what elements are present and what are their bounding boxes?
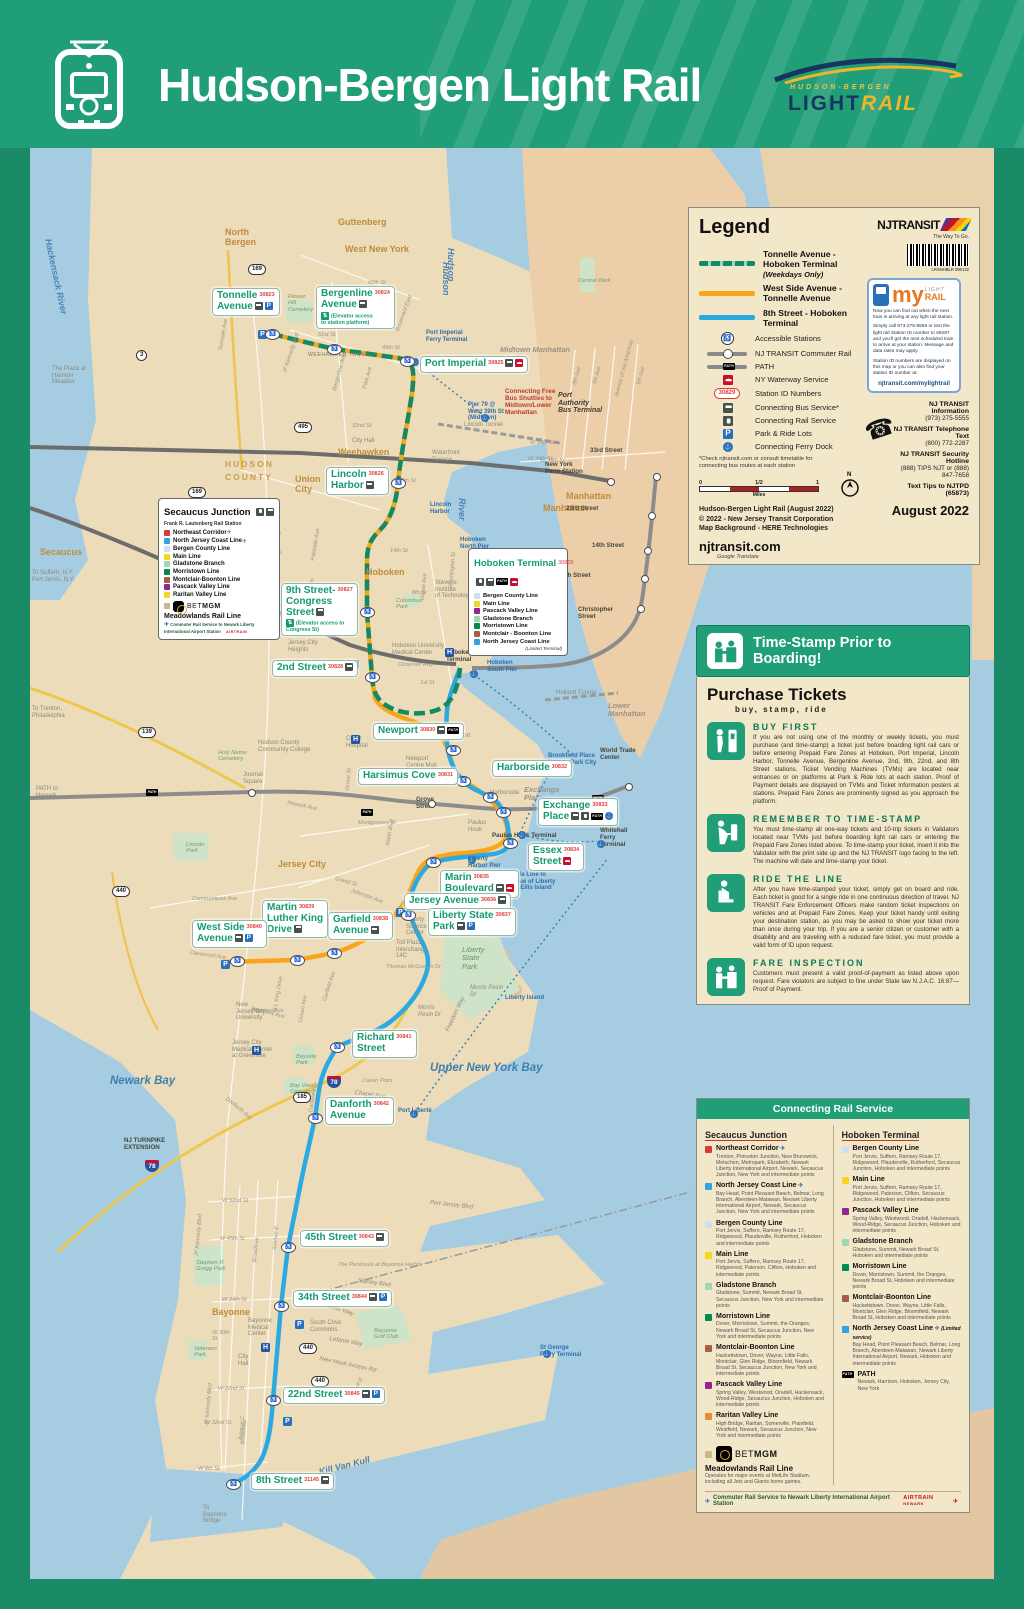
commuter-rail-station-dot [648,512,656,520]
map-label: Bayonne Medical Center [248,1318,272,1338]
station-name: 34th Street [298,1292,350,1303]
hoboken-box-title: Hoboken Terminal [474,558,556,569]
station-label: Bergenline30824Avenue⇅(Elevator access t… [316,286,395,329]
map-label: Guttenberg [338,218,387,228]
light-rail-train-icon [50,38,128,130]
station-marker: ♿ [308,1113,323,1124]
map-label: City Hall [352,438,374,445]
line-color-swatch [842,1208,849,1215]
station-label: 2nd Street30828 [272,660,358,677]
map-label: Jersey City Heights [288,640,318,653]
barcode [907,244,969,266]
map-label: 51st St [318,332,335,338]
rail-line-entry: Bergen County LinePort Jervis, Suffern, … [705,1220,825,1247]
station-name: Port Imperial [425,358,486,369]
station-id: 30844 [352,1294,367,1300]
nyww-icon [515,359,523,367]
station-id: 30835 [474,874,489,880]
station-label: Port Imperial30825 [420,356,528,373]
park-icon: P [379,1293,387,1301]
line-color-swatch [705,1345,712,1352]
airtrain-plane-icon: ✈ [953,1498,958,1505]
commuter-rail-station-dot [625,783,633,791]
path-icon: PATH [591,813,603,820]
station-name: Garfield [333,914,371,925]
station-marker: ♿ [360,607,375,618]
rail-line-entry: Pascack Valley LineSpring Valley, Westwo… [842,1207,962,1234]
column-title: Hoboken Terminal [842,1130,920,1141]
map-label: Hoboken [366,568,405,578]
station-name: Congress [286,596,332,607]
legend-symbol-row: ♿Accessible Stations [699,332,861,345]
park-icon: P [723,429,733,439]
elev-icon: ⇅ [321,312,329,320]
fare-inspection-icon [707,633,743,669]
station-id: 30843 [359,1234,374,1240]
rail-line-entry: Gladstone BranchGladstone, Summit, Newar… [705,1282,825,1309]
map-label: Caven Point [362,1078,392,1084]
route-badge: 139 [138,727,156,738]
scale-bar: 01/21MilesN [699,476,861,498]
hblr-logo-top: HUDSON-BERGEN [790,84,892,91]
park-ride-icon: P [221,960,230,969]
map-label: Communipaw Ave [192,896,237,902]
bus-icon [294,925,302,933]
station-name: Harbor [331,480,364,491]
line-color-swatch [705,1183,712,1190]
rail-line-entry: Northeast Corridor ✈Trenton, Princeton J… [705,1145,825,1178]
map-label: 33rd Street [590,448,622,455]
secaucus-junction-box: Secaucus Junction Frank R. Lautenberg Ra… [158,498,280,640]
station-label: Richard30841Street [352,1030,417,1058]
map-label: Lincoln Tunnel [464,422,503,429]
map-label: Journal Square [243,772,263,785]
airtrain-logo: AIRTRAIN NEWARK [903,1495,953,1507]
limited-service-note: (Limited Terminal) [474,646,562,651]
bus-icon [496,884,504,892]
station-id: 30825 [488,360,503,366]
station-label: Danforth30842Avenue [325,1097,394,1125]
map-label: To Bayonne Bridge [203,1505,227,1525]
ferry-dock-icon: ⚓ [410,1110,418,1118]
ferry-icon: ⚓ [605,812,613,820]
station-name: Avenue [321,299,357,310]
rail-line-entry: Morristown LineDover, Morristown, Summit… [705,1313,825,1340]
station-marker: ♿ [274,1301,289,1312]
bus-icon [437,726,445,734]
hospital-icon: H [261,1343,270,1352]
station-marker: ♿ [281,1242,296,1253]
map-label: Bayview Ave [252,1008,284,1014]
map-label: Connecting Free Bus Shuttles to Midtown/… [505,388,555,416]
station-label: 34th Street30844P [293,1290,392,1307]
station-name: Jersey Avenue [409,895,479,906]
map-label: Hoboken University Medical Center [392,643,444,656]
station-name: Place [543,811,569,822]
nyww-icon [510,578,518,586]
station-marker: ♿ [290,955,305,966]
line-color-swatch [705,1413,712,1420]
map-label: Secaucus [40,548,82,558]
hblr-logo-main: LIGHTRAIL [788,92,918,116]
map-label: To Suffern, N.Y. Port Jervis, N.Y. [32,570,75,583]
ticket-instruction-section: FARE INSPECTIONCustomers must present a … [707,958,959,996]
myrail-text-2: Simply call 973-275-5555 or text the lig… [873,324,955,355]
elev-icon: ⇅ [286,619,294,627]
ferry-dock-icon: ⚓ [470,670,478,678]
legend-symbol-row: ⚓Connecting Ferry Dock [699,442,861,451]
hospital-icon: H [445,648,454,657]
map-label: Holy Name Cemetery [218,750,247,763]
station-marker: ♿ [483,792,498,803]
station-label: Tonnelle30823AvenueP [212,288,280,316]
station-id: 30840 [247,924,262,930]
bus-icon [362,1390,370,1398]
nyww-icon [506,884,514,892]
betmgm-logo: BETMGM [705,1446,825,1462]
connecting-rail-panel: Connecting Rail Service Secaucus Junctio… [696,1098,970,1513]
rail-line-entry: Raritan Valley Line [164,592,274,598]
line-color-swatch [705,1221,712,1228]
rider-icon [707,874,745,912]
bus-icon [376,1233,384,1241]
station-marker: ♿ [391,478,406,489]
route-swatch-icon [699,261,755,266]
map-label: Bayonne Golf Club [374,1328,398,1341]
contact-entry: Text Tips to NJTPD (65873) [891,483,969,497]
station-id: 30833 [592,802,607,808]
route-badge: 440 [311,1376,329,1387]
myrail-link: njtransit.com/mylightrail [873,380,955,387]
line-color-swatch [842,1295,849,1302]
rail-line-entry: Main Line [164,554,274,560]
accessible-icon: ♿ [721,332,734,345]
map-label: Morris Pesin Dr [470,985,503,998]
contact-entry: NJ TRANSIT Telephone Text(800) 772-2287 [891,426,969,447]
rail-line-entry: Main LinePort Jervis, Suffern, Ramsey Ro… [842,1176,962,1203]
route-badge: 495 [294,422,312,433]
compass-icon: N [839,476,861,498]
secaucus-column: Secaucus JunctionNortheast Corridor ✈Tre… [705,1125,825,1485]
station-id: 30836 [481,897,496,903]
commuter-rail-station-dot [607,478,615,486]
rail-line-entry: Gladstone BranchGladstone, Summit, Newar… [842,1238,962,1259]
rail-icon [581,812,589,820]
map-label: Midtown Manhattan [500,346,570,354]
google-translate: Google Translate [717,554,861,560]
park-icon: P [372,1390,380,1398]
map-label: 32nd St [352,423,371,429]
ferry-dock-icon: ⚓ [518,831,526,839]
rail-line-entry: PATHPATHNewark, Harrison, Hoboken, Jerse… [842,1371,962,1392]
hospital-icon: H [351,735,360,744]
rail-line-entry: Raritan Valley LineHigh Bridge, Raritan,… [705,1412,825,1439]
commuter-rail-station-dot [428,800,436,808]
station-label: Liberty State30837ParkP [428,908,516,936]
line-color-swatch [842,1326,849,1333]
tvm-icon [707,722,745,760]
station-name: Martin [267,902,297,913]
map-label: Lincoln Harbor [430,502,451,515]
station-name: 2nd Street [277,662,326,673]
station-id: 30834 [564,847,579,853]
map-label: West New York [345,245,409,255]
bus-icon [235,934,243,942]
route-badge: 440 [112,886,130,897]
station-name: Newport [378,725,418,736]
legend-title: Legend [699,216,770,239]
ferry-dock-icon: ⚓ [543,1350,551,1358]
rail-line-entry: Main Line [474,601,562,607]
map-label: The Peninsula at Bayonne Harbor [338,1262,422,1268]
ferry-dock-icon: ⚓ [468,856,476,864]
map-label: 14th Street [592,543,624,550]
hoboken-column: Hoboken TerminalBergen County LinePort J… [833,1125,962,1485]
rail-line-entry: Northeast Corridor ✈ [164,529,274,536]
bus-icon [571,812,579,820]
map-label: To Trenton, Philadelphia [32,706,65,719]
map-label: Hudson [445,248,455,282]
commuter-rail-station-dot [653,473,661,481]
route-badge: 169 [248,264,266,275]
nyww-icon [723,375,733,385]
station-label: 8th Street31145 [251,1473,334,1490]
map-label: Bayonne [212,1308,250,1318]
station-id: 30842 [374,1101,389,1107]
rail-line-entry: Morristown Line [164,569,274,575]
park-ride-icon: P [283,1417,292,1426]
station-id: 30828 [328,664,343,670]
map-label: Manhattan [566,492,611,502]
connecting-rail-title: Connecting Rail Service [697,1099,969,1119]
bus-icon [359,300,367,308]
map-label: Hudson County Community College [258,740,310,753]
hospital-icon: H [252,1046,261,1055]
njtransit-swoosh-icon [940,218,972,231]
rail-icon [256,508,264,516]
ferry-icon: ⚓ [723,442,733,452]
header-banner: Hudson-Bergen Light Rail HUDSON-BERGEN L… [0,0,1024,148]
section-heading: BUY FIRST [753,722,959,732]
station-name: Liberty State [433,910,494,921]
route-swatch-icon [699,315,755,320]
airplane-icon: ✈ [705,1498,710,1505]
map-label: HUDSON COUNTY [225,458,274,484]
bus-icon [369,1293,377,1301]
path-icon: PATH [496,578,508,585]
station-id: 30823 [259,292,274,298]
map-label: Toll Plaza Interchange 14C [396,940,428,960]
station-id: 30827 [337,587,352,593]
station-id: 30831 [438,772,453,778]
map-label: Port Authority Bus Terminal [558,392,602,415]
credits: Hudson-Bergen Light Rail (August 2022)© … [699,505,861,532]
path-logo-icon: PATH [146,789,158,796]
map-label: Morris Pesin Dr [418,1005,441,1018]
section-heading: REMEMBER TO TIME-STAMP [753,814,959,824]
station-name: Tonnelle [217,290,257,301]
rail-icon [476,578,484,586]
map-label: Union City [295,475,321,495]
station-name: Danforth [330,1099,372,1110]
purchase-tickets-title: Purchase Tickets [707,685,847,704]
station-marker: ♿ [226,1479,241,1490]
commuter-rail-station-dot [637,605,645,613]
station-name: Avenue [217,301,253,312]
bus-icon [255,302,263,310]
commuter-rail-station-dot [641,575,649,583]
station-name: Street [286,607,314,618]
rail-icon [723,416,733,426]
contact-entry: NJ TRANSIT Information(973) 275-5555 [891,401,969,422]
station-label: 45th Street30843 [300,1230,389,1247]
map-label: Liberty Island [505,995,544,1002]
map-label: Jersey City [278,860,326,870]
rail-line-entry: Pascack Valley Line [474,608,562,614]
line-color-swatch [705,1283,712,1290]
station-name: Marin [445,872,472,883]
commuter-rail-station-dot [248,789,256,797]
station-name: Richard [357,1032,394,1043]
map-label: Weehawken [338,448,389,458]
line-color-swatch [842,1146,849,1153]
station-name: Harborside [497,762,550,773]
station-name: Street [357,1043,385,1054]
hoboken-station-id: 30829 [558,560,573,566]
park-icon: P [265,302,273,310]
map-label: 8th St [412,590,427,596]
commuter-rail-icon [707,352,747,356]
rail-line-entry: Montclair-Boonton Line [164,577,274,583]
section-heading: FARE INSPECTION [753,958,959,968]
rail-line-entry: North Jersey Coast Line ✈Bay Head, Point… [705,1182,825,1215]
rail-line-entry: Bergen County Line [474,593,562,599]
map-label: W 52nd St [222,1198,248,1204]
legend-route-row: Tonnelle Avenue - Hoboken Terminal (Week… [699,249,861,279]
commuter-rail-station-dot [644,547,652,555]
line-color-swatch [705,1314,712,1321]
inspect-icon [707,958,745,996]
purchase-tickets-tagline: buy, stamp, ride [735,705,959,714]
ticket-instruction-section: RIDE THE LINEAfter you have time-stamped… [707,874,959,950]
map-label: 23rd Street [566,506,598,513]
station-marker: ♿ [496,807,511,818]
rail-line-entry: Montclair-Boonton LineHackettstown, Dove… [842,1294,962,1321]
map-label: W 34th St [222,1297,247,1303]
line-color-swatch [705,1146,712,1153]
station-name: Avenue [197,933,233,944]
map-label: PATH to Newark [36,786,58,799]
station-label: Garfield30838Avenue [328,912,393,940]
map-label: Thomas McGovern Dr [386,964,441,970]
legend-symbol-row: 30829Station ID Numbers [699,388,861,399]
rail-line-entry: North Jersey Coast Line [474,639,562,645]
station-marker: ♿ [365,672,380,683]
path-icon: PATH [842,1371,854,1378]
hoboken-terminal-box: Hoboken Terminal30829 PATH Bergen County… [468,548,568,656]
station-id: 30830 [420,727,435,733]
path-icon: PATH [447,727,459,734]
map-label: Lower Manhattan [608,702,646,719]
route-badge: 169 [188,487,206,498]
station-label: Harborside30832 [492,760,572,777]
station-marker: ♿ [327,948,342,959]
map-label: Columbus Park [396,598,422,611]
map-label: Upper New York Bay [430,1062,542,1075]
legend-symbol-row: Connecting Rail Service [699,416,861,425]
path-logo-icon: PATH [361,809,373,816]
station-name: Park [433,921,455,932]
station-marker: ♿ [456,776,471,787]
station-label: Newport30830PATH [373,723,464,740]
map-label: 14th St [390,548,408,554]
station-name: 9th Street- [286,585,335,596]
map-label: River [456,498,466,521]
map-date: August 2022 [867,503,969,518]
legend-symbol-row: NJ TRANSIT Commuter Rail [699,349,861,358]
station-name: Luther King [267,913,323,924]
map-label: W 8th St [198,1466,219,1472]
website: njtransit.com [699,539,861,554]
map-label: Lincoln Park [186,842,204,855]
section-heading: RIDE THE LINE [753,874,959,884]
legend-right-column: LRSNHBLR 080122 my LIGHTRAIL Now you can… [861,244,969,560]
secaucus-box-subtitle: Frank R. Lautenberg Rail Station [164,521,274,527]
map-label: Holland Tunnel [556,690,596,697]
station-label: Lincoln30826Harbor [326,467,389,495]
station-id: 30837 [496,912,511,918]
map-label: W 34th St [540,458,565,464]
column-title: Secaucus Junction [705,1130,787,1141]
station-marker: ♿ [265,329,280,340]
station-name: Lincoln [331,469,367,480]
map-label: Christopher Street [578,607,613,621]
bus-icon [371,926,379,934]
map-label: City Hall [238,1354,248,1367]
bus-icon [457,922,465,930]
bus-icon [723,403,733,413]
station-id: 30839 [299,904,314,910]
map-label: Hoboken South Pier [487,660,517,673]
secaucus-box-title: Secaucus Junction [164,507,251,518]
station-label: Harsimus Cove30831 [358,768,458,785]
rail-line-entry: Gladstone Branch [164,561,274,567]
rail-line-entry: Bergen County Line [164,546,274,552]
station-name: Bergenline [321,288,373,299]
map-label: The Plaza at Harmon Meadow [52,366,86,386]
station-marker: ♿ [503,838,518,849]
legend-symbol-row: NY Waterway Service [699,375,861,384]
bus-icon [321,1476,329,1484]
station-id: 30832 [552,764,567,770]
betmgm-lion-icon [173,601,184,612]
station-name: West Side [197,922,245,933]
map-label: Liberty State Park [462,946,485,971]
validator-icon [707,814,745,852]
station-marker: ♿ [230,956,245,967]
station-label: Essex30834Street [528,843,584,871]
hoboken-box-icons: PATH [474,573,562,591]
station-name: Drive [267,924,292,935]
legend-items: Tonnelle Avenue - Hoboken Terminal (Week… [699,244,861,560]
park-icon: P [245,934,253,942]
bus-icon [266,508,274,516]
station-name: 8th Street [256,1475,302,1486]
station-marker: ♿ [446,745,461,756]
rail-line-entry: Main LinePort Jervis, Suffern, Ramsey Ro… [705,1251,825,1278]
legend-symbol-row: PATHPATH [699,362,861,371]
line-color-swatch [842,1239,849,1246]
